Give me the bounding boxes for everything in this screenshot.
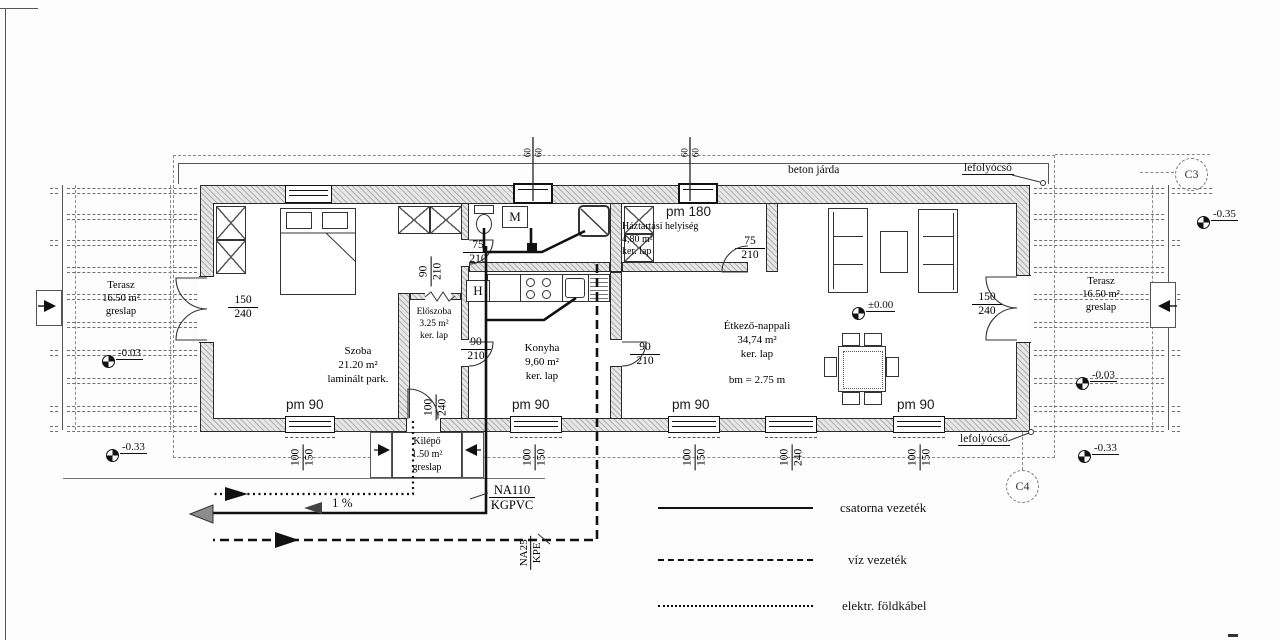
terrace-left-deck-line [67, 267, 197, 273]
dim-den: 210 [630, 355, 660, 368]
beton-jarda-label: beton járda [788, 164, 839, 176]
wardrobe-szoba-left2 [216, 240, 246, 274]
dim-den: 240 [437, 394, 450, 420]
pipe-size: NA110 [489, 483, 535, 498]
elevation-m035-label: -0.35 [1211, 208, 1238, 221]
terrace-stub-line [1172, 240, 1180, 246]
eloszoba-floor: ker. lap [406, 331, 462, 343]
dining-chair [864, 333, 882, 346]
pm-label-etkezo-left: pm 90 [672, 397, 710, 412]
wall-bath-left-a [461, 203, 469, 240]
dining-chair [824, 357, 837, 377]
terrace-name: Terasz [90, 279, 152, 292]
terrace-left-tap-box [36, 290, 62, 326]
terrace-floor: greslap [90, 305, 152, 318]
slope-label: 1 % [328, 495, 367, 513]
terrace-stub-line [50, 240, 58, 246]
terrace-left-deck-line [67, 240, 197, 246]
terrace-stub-line [50, 188, 58, 194]
legend-label-electric: elektr. földkábel [842, 598, 926, 614]
gutter-line-left [178, 163, 179, 184]
legend-label-water: víz vezeték [848, 552, 907, 568]
haztartasi-area: 4,80 m² [622, 234, 714, 247]
dim-den: 150 [304, 444, 317, 470]
dim-window-etkezo-left-100-150: 100150 [682, 444, 709, 470]
dim-num: 60 [679, 142, 690, 164]
wall-konyha-etkezo-b [610, 366, 622, 419]
section-marker-c4: C4 [1006, 470, 1039, 503]
wardrobe-szoba-top2 [430, 206, 462, 234]
terrace-area: 16.50 m² [90, 292, 152, 305]
terrace-stub-line [50, 406, 58, 412]
dim-num: 100 [423, 394, 437, 420]
page-border-left [5, 8, 6, 640]
legend-label-sewer: csatorna vezeték [840, 500, 926, 516]
door-gap-right-terrace [1016, 275, 1031, 343]
terrace-right-deck-line [1034, 267, 1164, 273]
sofa-left-cushion-line [833, 264, 863, 265]
dim-den: 240 [972, 305, 1002, 318]
dim-window-szoba-100-150: 100150 [290, 444, 317, 470]
dining-chair [864, 392, 882, 405]
stove-burner [526, 290, 535, 299]
pm-label-etkezo-right: pm 90 [897, 397, 935, 412]
c3-leader-dash [1140, 172, 1174, 173]
dim-den: 210 [735, 249, 765, 262]
eloszoba-area: 3.25 m² [406, 319, 462, 331]
terrace-left-deck-line [67, 322, 197, 328]
electric-arrowhead [225, 487, 248, 501]
dining-chair [842, 392, 860, 405]
sofa-right [918, 209, 958, 293]
dim-num: 100 [522, 444, 536, 470]
konyha-label: Konyha 9,60 m² ker. lap [512, 342, 572, 383]
counter-divider-1 [520, 274, 521, 302]
counter-divider-2 [562, 274, 563, 302]
pipe-label-na25-kpe: NA25KPE [518, 536, 544, 570]
terrace-stub-line [1172, 350, 1180, 356]
haztartasi-floor: ker. lap [622, 246, 714, 259]
terrace-left-guide-2 [170, 185, 171, 430]
downspout-label-bottom: lefolyócső [958, 433, 1010, 446]
terrace-right-deck-line [1034, 240, 1164, 246]
bed-pillow-right [322, 212, 348, 229]
window-etkezo-right [893, 416, 945, 433]
legend-line-sewer [658, 507, 813, 509]
etkezo-height: bm = 2.75 m [700, 374, 814, 388]
dim-den: 150 [696, 444, 709, 470]
bed-pillow-left [286, 212, 312, 229]
dim-den: 240 [228, 308, 258, 321]
dim-den: 150 [536, 444, 549, 470]
window-konyha-bottom [510, 416, 562, 433]
szoba-name: Szoba [308, 345, 408, 359]
window-etkezo-right-sill [893, 437, 945, 438]
drainer-grate [590, 277, 608, 299]
washing-machine: M [502, 206, 528, 228]
window-etkezo-mid-sill [765, 437, 817, 438]
page-corner-tick [1228, 634, 1238, 637]
window-szoba-sill [285, 437, 335, 438]
eloszoba-name: Előszoba [406, 307, 462, 319]
section-marker-c3-label: C3 [1184, 167, 1198, 181]
elevation-m003-left-label: -0.03 [116, 347, 143, 360]
elevation-m033-right-label: -0.33 [1092, 442, 1119, 455]
etkezo-floor: ker. lap [700, 348, 814, 362]
dim-num: 150 [228, 294, 258, 308]
terrace-name: Terasz [1068, 275, 1134, 288]
dim-num: 100 [907, 444, 921, 470]
pm-label-szoba: pm 90 [286, 397, 324, 412]
dim-den: 210 [463, 253, 493, 266]
gutter-line-right [1048, 163, 1049, 184]
water-arrowhead [275, 532, 299, 548]
pipe-material: KGPVC [489, 498, 535, 512]
haztartasi-name: Háztartási helyiség [622, 221, 714, 234]
dim-num: 75 [463, 239, 493, 253]
dining-chair [842, 333, 860, 346]
dim-haztartasi-door-75-210: 75210 [735, 235, 765, 262]
dim-den: 60 [691, 142, 701, 164]
terrace-stub-line [1172, 188, 1212, 194]
vent-box-bath [513, 183, 553, 204]
fridge-label: H [473, 283, 482, 298]
wardrobe-szoba-left [216, 206, 246, 240]
etkezo-name: Étkező-nappali [700, 320, 814, 334]
elevation-marker-icon [1197, 216, 1210, 229]
gutter-line-top [178, 163, 1048, 164]
terrace-area: 16.50 m² [1068, 288, 1134, 301]
kitchen-sink [565, 278, 585, 298]
konyha-floor: ker. lap [512, 370, 572, 384]
dim-den: 150 [921, 444, 934, 470]
pipe-material: KPE [532, 536, 544, 570]
pipe-label-na110-kgpvc: NA110KGPVC [489, 483, 535, 512]
window-szoba-bottom [285, 416, 335, 433]
floor-drain [527, 243, 537, 253]
etkezo-height-label: bm = 2.75 m [700, 374, 814, 388]
dim-opening-90-210: 90210 [418, 256, 445, 286]
terrace-right-deck-line [1034, 322, 1164, 328]
kilepo-side-box-right [462, 432, 484, 478]
dim-num: 100 [682, 444, 696, 470]
terrace-left-guide-1 [75, 185, 76, 430]
eaves-top-extension [1055, 154, 1210, 155]
sewer-arrowhead [190, 505, 213, 523]
elevation-marker-icon [1076, 377, 1089, 390]
dim-door-left-150-240: 150240 [228, 294, 258, 321]
terrace-right-deck-line [1034, 426, 1164, 432]
dining-table-inner [843, 351, 883, 389]
dim-bath-door-75-210: 75210 [463, 239, 493, 266]
kilepo-area: 1.50 m² [394, 448, 460, 461]
dim-den: 240 [793, 444, 806, 470]
terrace-right-label: Terasz 16.50 m² greslap [1068, 275, 1134, 314]
dining-chair [886, 357, 899, 377]
section-marker-c4-label: C4 [1015, 479, 1029, 493]
window-etkezo-left [668, 416, 720, 433]
fridge: H [466, 280, 490, 302]
floor-plan-page: beton járda lefolyócső lefolyócső C3 C4 … [0, 0, 1280, 640]
dim-door-right-150-240: 150240 [972, 291, 1002, 318]
dim-window-etkezo-right-100-150: 100150 [907, 444, 934, 470]
slope-arrowhead [304, 502, 322, 514]
pm-label-konyha: pm 90 [512, 397, 550, 412]
terrace-right-deck-line [1034, 214, 1164, 220]
sofa-left-back-line [833, 212, 834, 289]
dim-num: 100 [779, 444, 793, 470]
elevation-marker-icon [106, 449, 119, 462]
szoba-area: 21.20 m² [308, 359, 408, 373]
szoba-label: Szoba 21.20 m² laminált park. [308, 345, 408, 386]
kilepo-label: Kilépő 1.50 m² greslap [394, 435, 460, 474]
elevation-zero-label: ±0.00 [866, 299, 895, 312]
window-etkezo-mid [765, 416, 817, 433]
dim-num: 75 [735, 235, 765, 249]
na110-leader [470, 493, 488, 499]
elevation-m033-left-label: -0.33 [120, 441, 147, 454]
dim-den: 210 [432, 256, 445, 286]
pipe-size: NA25 [518, 536, 531, 570]
terrace-left-deck-line [67, 378, 197, 384]
elevation-marker-icon [852, 307, 865, 320]
elevation-m003-right-label: -0.03 [1090, 369, 1117, 382]
terrace-stub-line [50, 426, 58, 432]
dim-vent-60-60-right: 6060 [679, 142, 700, 164]
wall-haztartasi-right [766, 203, 778, 272]
counter-divider-3 [588, 274, 589, 302]
etkezo-area: 34,74 m² [700, 334, 814, 348]
terrace-left-deck-line [67, 188, 197, 194]
terrace-stub-line [1172, 406, 1180, 412]
page-border-top-stub [0, 8, 38, 9]
terrace-floor: greslap [1068, 301, 1134, 314]
window-konyha-sill [510, 437, 562, 438]
sofa-left-cushion-line [833, 236, 863, 237]
dim-vent-60-60-left: 6060 [522, 142, 543, 164]
elevation-marker-icon [102, 355, 115, 368]
terrace-left-deck-line [67, 214, 197, 220]
konyha-name: Konyha [512, 342, 572, 356]
dim-den: 210 [461, 350, 491, 363]
shower-tray [578, 205, 610, 237]
terrace-stub-line [50, 350, 58, 356]
sofa-right-cushion-line [923, 264, 953, 265]
legend-line-electric [658, 605, 813, 607]
toilet-tank [474, 205, 494, 214]
coffee-table [880, 231, 908, 273]
door-gap-left-terrace [199, 276, 214, 343]
konyha-area: 9,60 m² [512, 356, 572, 370]
washing-machine-label: M [509, 209, 521, 224]
terrace-right-tap-box [1150, 282, 1176, 328]
terrace-stub-line [1172, 426, 1180, 432]
elevation-marker-icon [1078, 450, 1091, 463]
stove-burner [542, 278, 551, 287]
dim-etkezo-door-90-210: 90210 [630, 341, 660, 368]
stove-burner [526, 278, 535, 287]
sofa-left [828, 208, 868, 293]
kilepo-name: Kilépő [394, 435, 460, 448]
dim-num: 90 [418, 256, 432, 286]
dim-kilepo-door-100-240: 100240 [423, 394, 450, 420]
wall-bath-haztartasi [610, 203, 622, 272]
dim-num: 90 [630, 341, 660, 355]
sofa-right-cushion-line [923, 236, 953, 237]
dim-konyha-door-90-210: 90210 [461, 336, 491, 363]
wall-bath-left-c [461, 366, 469, 419]
etkezo-label: Étkező-nappali 34,74 m² ker. lap [700, 320, 814, 361]
toilet-bowl [476, 214, 492, 234]
site-line [63, 478, 545, 479]
wardrobe-szoba-top [398, 206, 430, 234]
wall-haztartasi-etkezo-bottom [622, 262, 748, 272]
dim-num: 60 [522, 142, 533, 164]
dim-num: 150 [972, 291, 1002, 305]
sofa-right-back-line [953, 213, 954, 290]
terrace-right-deck-line [1034, 188, 1164, 194]
c4-leader-dash [1022, 432, 1023, 470]
window-szoba-top [285, 185, 332, 203]
szoba-floor: laminált park. [308, 373, 408, 387]
dim-den: 60 [534, 142, 544, 164]
downspout-label-top: lefolyócső [962, 162, 1014, 175]
dim-window-konyha-100-150: 100150 [522, 444, 549, 470]
terrace-left-label: Terasz 16.50 m² greslap [90, 279, 152, 318]
terrace-right-deck-line [1034, 406, 1164, 412]
stove-burner [542, 290, 551, 299]
wall-konyha-etkezo-a [610, 272, 622, 340]
terrace-right-deck-line [1034, 350, 1164, 356]
vent-box-haztartasi [678, 183, 718, 204]
terrace-left-deck-line [67, 426, 197, 432]
legend-line-water [658, 559, 813, 561]
kilepo-side-box-left [370, 432, 392, 478]
window-etkezo-left-sill [668, 437, 720, 438]
eloszoba-label: Előszoba 3.25 m² ker. lap [406, 307, 462, 343]
haztartasi-label: Háztartási helyiség 4,80 m² ker. lap [622, 221, 714, 259]
dim-num: 100 [290, 444, 304, 470]
opening-szoba-eloszoba [425, 292, 451, 301]
dim-window-etkezo-mid-100-240: 100240 [779, 444, 806, 470]
kilepo-floor: greslap [394, 461, 460, 474]
dim-num: 90 [461, 336, 491, 350]
wall-bath-left-b [461, 266, 469, 340]
haztartasi-pm-label: pm 180 [666, 204, 711, 219]
terrace-left-deck-line [67, 406, 197, 412]
